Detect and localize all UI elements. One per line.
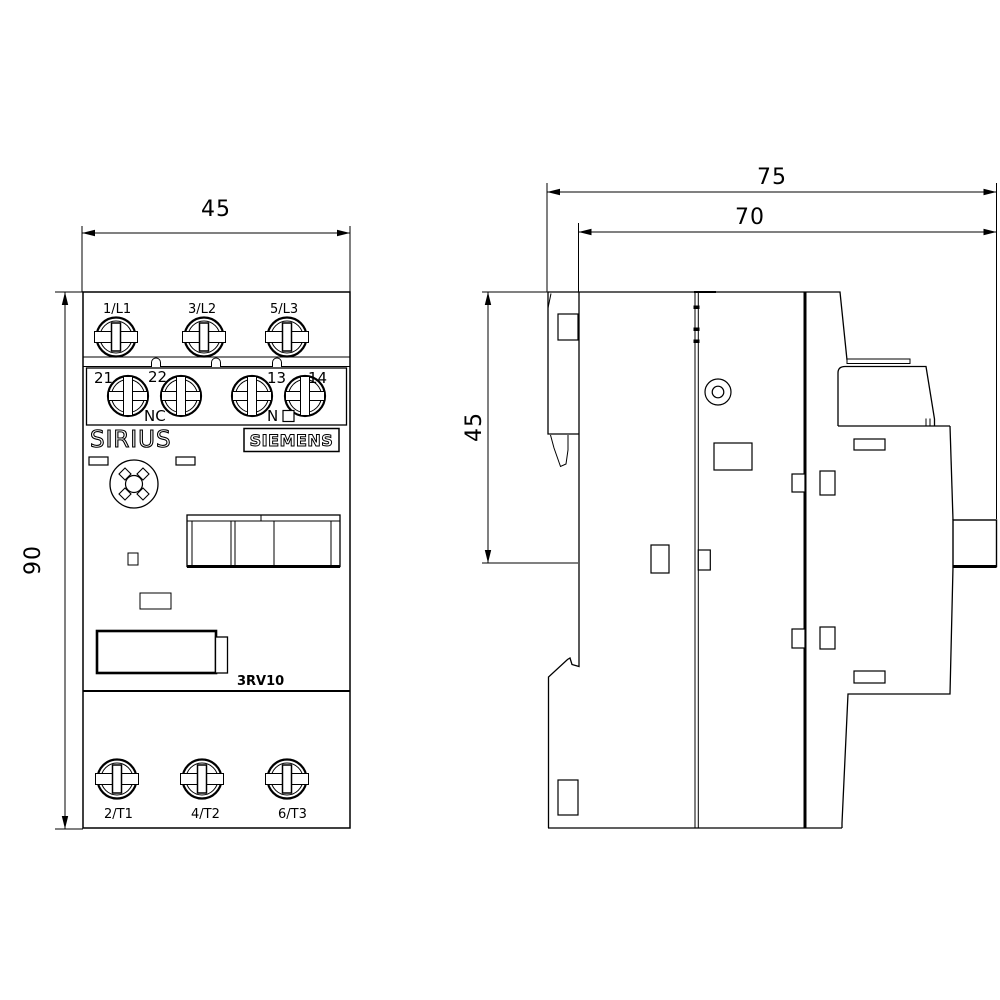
aux-screw-13 (232, 376, 272, 416)
side-detail-slot (854, 439, 885, 450)
side-lower-right-edge (842, 567, 953, 828)
aux-label-14: 14 (308, 369, 327, 387)
side-detail-window (651, 545, 669, 573)
side-detail-lug (820, 627, 835, 649)
dimension-side-overall-depth: 75 (547, 165, 997, 519)
aux-label-13: 13 (267, 369, 286, 387)
dimensional-drawing: 1/L1 3/L2 5/L3 21 22 (0, 0, 1000, 1000)
dim-side-overall-depth-label: 75 (757, 165, 787, 190)
side-lower-terminal-block (953, 520, 997, 567)
dimension-front-height: 90 (21, 292, 83, 829)
side-top-strip (847, 359, 910, 364)
terminal-screw-6T3 (266, 760, 309, 799)
dimension-side-body-depth: 70 (579, 205, 997, 292)
terminal-label-1L1: 1/L1 (103, 302, 131, 317)
model-text: 3RV10 (237, 674, 284, 689)
small-window (128, 553, 138, 565)
indicator-window (176, 457, 195, 465)
side-detail-slot (854, 671, 885, 683)
side-detail-window (698, 550, 710, 570)
label-plate-tab (216, 637, 228, 673)
front-view: 1/L1 3/L2 5/L3 21 22 (83, 292, 350, 828)
side-top-edge (548, 292, 847, 360)
aux-no-label: N (267, 407, 278, 425)
aux-screw-21 (108, 376, 148, 416)
reset-window (140, 593, 171, 609)
side-upper-block (838, 367, 935, 427)
side-detail-lug (792, 629, 805, 648)
terminal-label-2T1: 2/T1 (104, 807, 133, 822)
din-clip-upper (548, 292, 579, 434)
dim-side-upper-height-label: 45 (462, 412, 487, 442)
dim-side-body-depth-label: 70 (735, 205, 765, 230)
terminal-screw-3L2 (183, 318, 226, 357)
logo-text: SIEMENS (250, 431, 334, 450)
rotary-knob (110, 460, 158, 508)
dimension-front-width: 45 (82, 197, 350, 292)
terminal-screw-5L3 (266, 318, 309, 357)
terminal-label-5L3: 5/L3 (270, 302, 298, 317)
aux-nc-label: NC (144, 407, 166, 425)
aux-label-21: 21 (94, 369, 113, 387)
terminal-screw-2T1 (96, 760, 139, 799)
hinge-bump-icon (212, 358, 221, 367)
terminal-label-3L2: 3/L2 (188, 302, 216, 317)
side-detail-lug (792, 474, 805, 492)
aux-label-22: 22 (148, 368, 167, 386)
hinge-bump-icon (152, 358, 161, 367)
technical-drawing-canvas: 1/L1 3/L2 5/L3 21 22 (0, 0, 1000, 1000)
din-clip-lower-window (558, 780, 578, 815)
label-plate (97, 631, 216, 673)
terminal-screw-4T2 (181, 760, 224, 799)
side-left-edge (549, 292, 580, 828)
switch-window (187, 515, 340, 567)
terminal-screw-1L1 (95, 318, 138, 357)
side-view (548, 292, 997, 828)
din-clip-hook (551, 435, 569, 467)
dim-front-width-label: 45 (201, 197, 231, 222)
side-detail-lug (820, 471, 835, 495)
brand-text: SIRIUS (90, 427, 172, 453)
side-detail-window (714, 443, 752, 470)
terminal-label-6T3: 6/T3 (278, 807, 307, 822)
terminal-label-4T2: 4/T2 (191, 807, 220, 822)
din-clip-window (558, 314, 578, 340)
hinge-bump-icon (273, 358, 282, 367)
dim-front-height-label: 90 (21, 545, 46, 575)
aux-no-square-icon (283, 411, 294, 422)
indicator-window (89, 457, 108, 465)
